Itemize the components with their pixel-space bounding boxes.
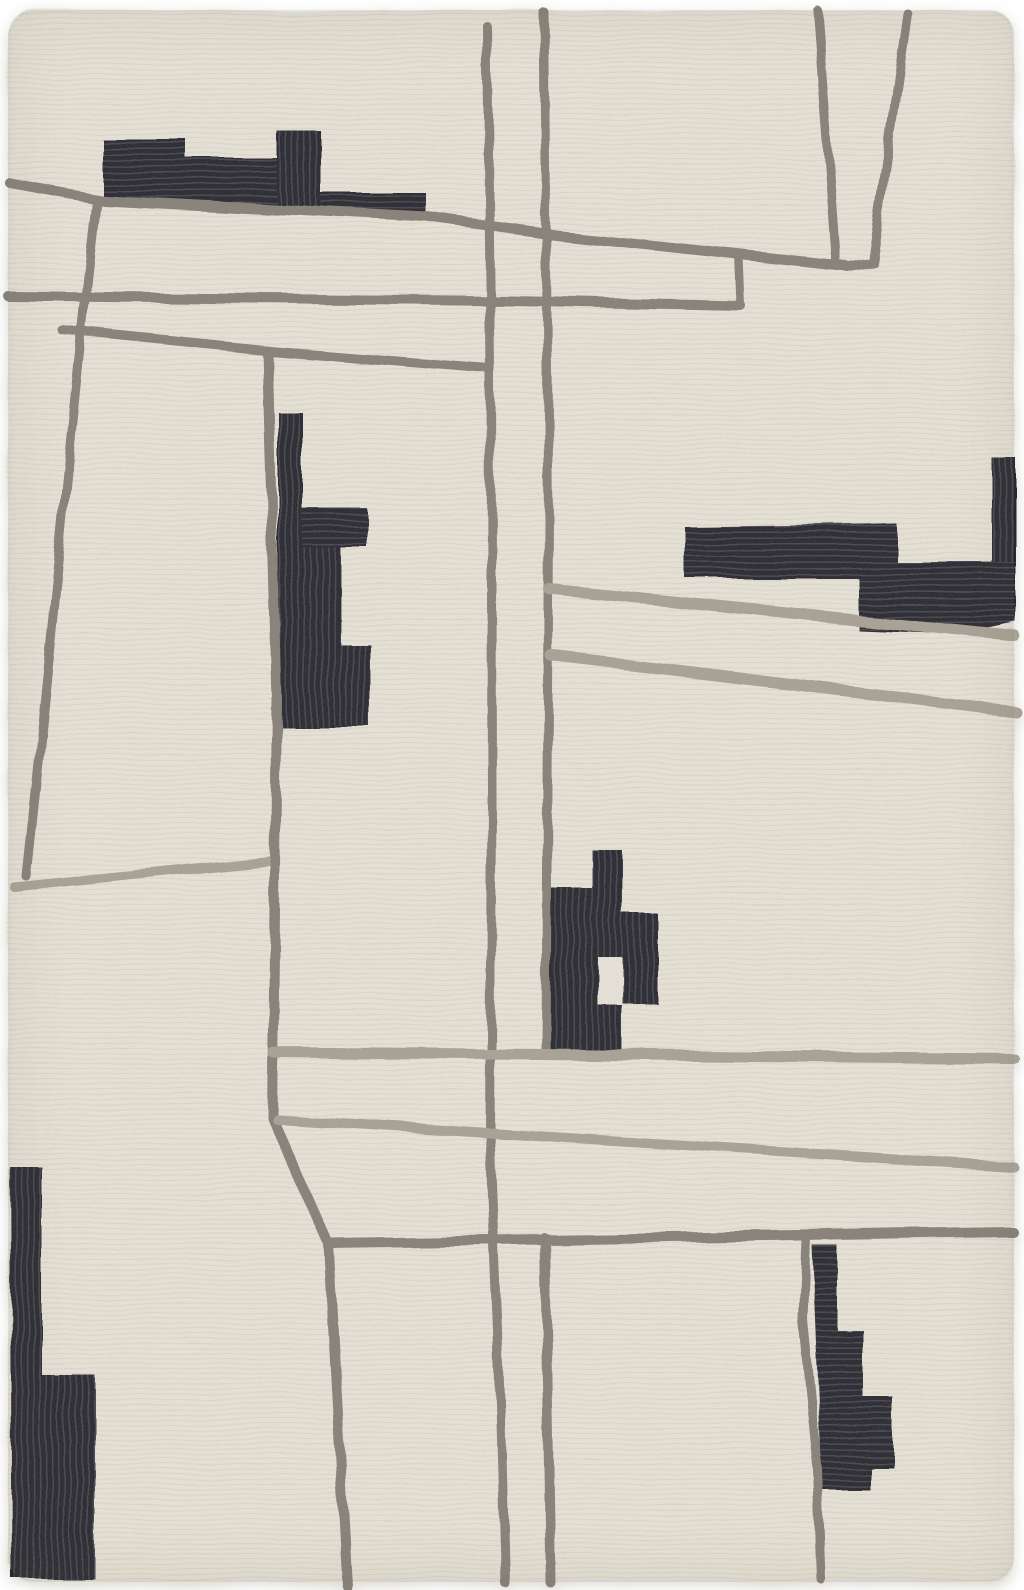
wool-grain-overlay: [8, 10, 1014, 1582]
rug-artwork-canvas: [0, 0, 1024, 1590]
rug-photo-figure: [0, 0, 1024, 1590]
